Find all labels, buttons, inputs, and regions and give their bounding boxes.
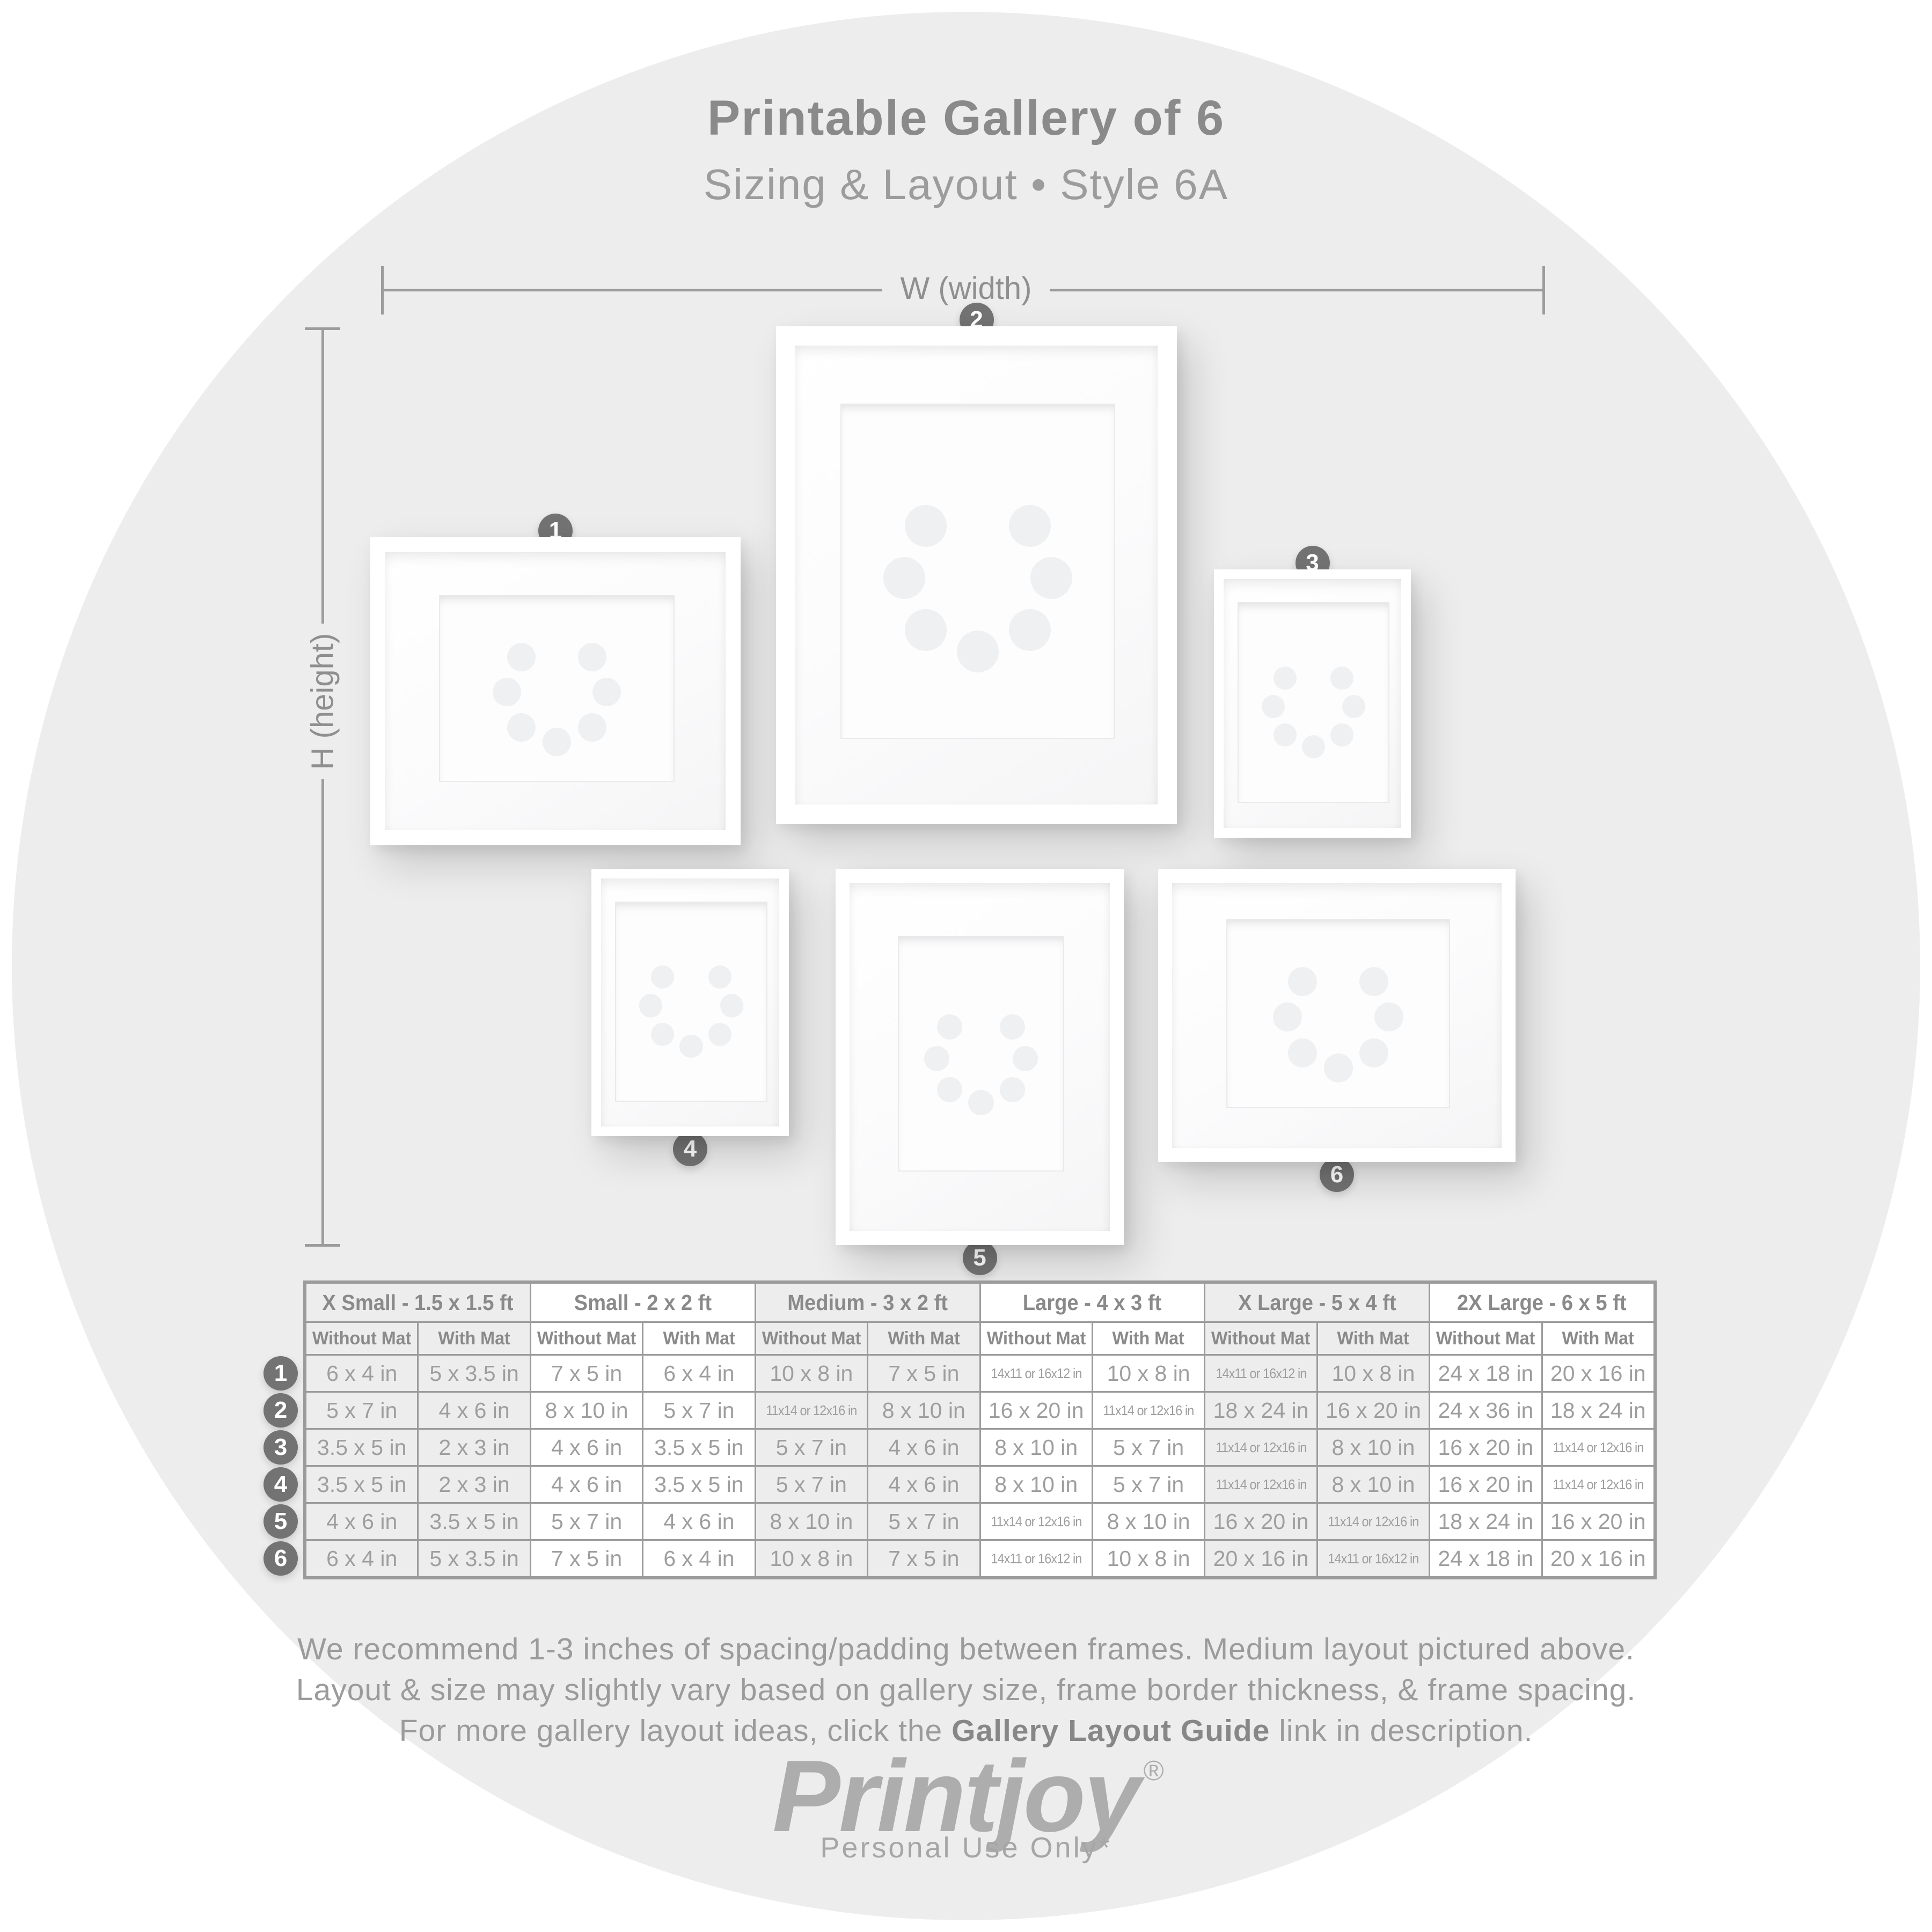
frame-1 (370, 537, 741, 845)
table-cell: 4 x 6 in (531, 1467, 642, 1502)
placeholder-dot (1274, 667, 1297, 690)
table-cell: 4 x 6 in (419, 1393, 529, 1428)
placeholder-dot (543, 728, 571, 756)
frame-mat (795, 346, 1158, 804)
table-cell: 24 x 36 in (1430, 1393, 1541, 1428)
table-cell-value: 11x14 or 12x16 in (1103, 1402, 1194, 1419)
table-cell-value: 8 x 10 in (994, 1472, 1078, 1497)
frame-number-badge-4: 4 (673, 1132, 707, 1166)
table-cell: 4 x 6 in (868, 1467, 979, 1502)
table-cell: 20 x 16 in (1543, 1541, 1653, 1576)
table-subheader: With Mat (643, 1323, 754, 1354)
frame-2 (776, 326, 1177, 824)
table-cell-value: 14x11 or 16x12 in (1216, 1365, 1306, 1382)
table-cell-value: 8 x 10 in (994, 1435, 1078, 1460)
table-cell: 4 x 6 in (531, 1430, 642, 1465)
table-cell: 11x14 or 12x16 in (1543, 1467, 1653, 1502)
height-line-top-segment (321, 328, 324, 624)
placeholder-dot (720, 994, 743, 1017)
table-cell-value: 8 x 10 in (1331, 1472, 1415, 1497)
table-cell: 8 x 10 in (756, 1504, 867, 1539)
table-subheader-label: With Mat (438, 1328, 510, 1349)
table-cell: 7 x 5 in (868, 1541, 979, 1576)
table-subheader-label: Without Mat (762, 1328, 861, 1349)
table-cell-value: 4 x 6 in (551, 1472, 622, 1497)
table-cell: 10 x 8 in (1093, 1541, 1204, 1576)
table-cell: 11x14 or 12x16 in (1205, 1467, 1316, 1502)
table-cell: 6 x 4 in (306, 1356, 417, 1391)
table-subheader: Without Mat (306, 1323, 417, 1354)
table-cell-value: 24 x 18 in (1438, 1361, 1533, 1386)
table-group-header-label: X Small - 1.5 x 1.5 ft (323, 1290, 514, 1315)
table-cell-value: 4 x 6 in (663, 1509, 734, 1534)
table-subheader: With Mat (1543, 1323, 1653, 1354)
table-cell: 20 x 16 in (1543, 1356, 1653, 1391)
table-cell: 10 x 8 in (1318, 1356, 1429, 1391)
table-cell: 5 x 7 in (531, 1504, 642, 1539)
frame-6 (1158, 869, 1516, 1162)
table-subheader-label: With Mat (1113, 1328, 1184, 1349)
personal-use-tagline: Personal Use Only* (0, 1831, 1932, 1864)
frame-mat (385, 552, 726, 830)
table-cell-value: 18 x 24 in (1550, 1398, 1646, 1423)
table-cell: 4 x 6 in (306, 1504, 417, 1539)
placeholder-dot (651, 965, 674, 989)
table-cell-value: 5 x 7 in (663, 1398, 734, 1423)
placeholder-dot (968, 1090, 993, 1115)
table-cell-value: 11x14 or 12x16 in (1328, 1513, 1418, 1530)
mat-opening (439, 595, 675, 782)
table-subheader-label: With Mat (888, 1328, 960, 1349)
table-cell-value: 18 x 24 in (1213, 1398, 1309, 1423)
table-cell: 8 x 10 in (531, 1393, 642, 1428)
table-cell-value: 10 x 8 in (770, 1546, 853, 1571)
table-cell-value: 5 x 3.5 in (429, 1361, 518, 1386)
table-cell: 8 x 10 in (1318, 1430, 1429, 1465)
table-cell-value: 3.5 x 5 in (429, 1509, 518, 1534)
table-cell: 5 x 7 in (1093, 1430, 1204, 1465)
width-line-right-segment (1050, 289, 1545, 291)
table-subheader: Without Mat (981, 1323, 1092, 1354)
table-subheader: With Mat (1318, 1323, 1429, 1354)
placeholder-dot (1288, 1038, 1317, 1067)
note-line-1: We recommend 1-3 inches of spacing/paddi… (0, 1631, 1932, 1667)
table-cell-value: 5 x 7 in (326, 1398, 397, 1423)
table-cell: 7 x 5 in (531, 1541, 642, 1576)
row-number-badge-1: 1 (264, 1356, 298, 1391)
table-subheader-label: With Mat (1562, 1328, 1634, 1349)
row-number-badge-5: 5 (264, 1504, 298, 1539)
table-group-header-label: Small - 2 x 2 ft (574, 1290, 712, 1315)
frame-mat (1172, 883, 1502, 1148)
table-cell: 6 x 4 in (643, 1356, 754, 1391)
table-cell: 14x11 or 16x12 in (1205, 1356, 1316, 1391)
placeholder-dot (708, 965, 731, 989)
page-title: Printable Gallery of 6 (0, 90, 1932, 147)
table-cell: 11x14 or 12x16 in (1205, 1430, 1316, 1465)
table-cell: 11x14 or 12x16 in (981, 1504, 1092, 1539)
frame-mat (1224, 579, 1401, 828)
table-subheader: Without Mat (531, 1323, 642, 1354)
height-label: H (height) (305, 633, 341, 770)
placeholder-dot (1013, 1046, 1038, 1071)
width-line-left-segment (382, 289, 882, 291)
table-cell-value: 3.5 x 5 in (654, 1472, 743, 1497)
table-cell: 16 x 20 in (981, 1393, 1092, 1428)
table-group-header: X Small - 1.5 x 1.5 ft (306, 1284, 530, 1321)
table-cell: 6 x 4 in (306, 1541, 417, 1576)
table-cell: 8 x 10 in (1318, 1467, 1429, 1502)
table-cell-value: 6 x 4 in (663, 1546, 734, 1571)
table-group-header: Medium - 3 x 2 ft (756, 1284, 979, 1321)
table-cell-value: 18 x 24 in (1438, 1509, 1533, 1534)
placeholder-dot (639, 994, 662, 1017)
frame-5 (836, 869, 1124, 1245)
row-number-badge-3: 3 (264, 1430, 298, 1465)
placeholder-dot (1330, 667, 1353, 690)
table-cell: 10 x 8 in (1093, 1356, 1204, 1391)
table-cell: 8 x 10 in (868, 1393, 979, 1428)
table-cell-value: 7 x 5 in (551, 1361, 622, 1386)
table-cell-value: 6 x 4 in (326, 1361, 397, 1386)
table-cell-value: 5 x 7 in (776, 1472, 847, 1497)
table-subheader: Without Mat (1430, 1323, 1541, 1354)
mat-opening (898, 936, 1064, 1172)
table-cell: 14x11 or 16x12 in (1318, 1541, 1429, 1576)
placeholder-dot (493, 678, 521, 706)
frame-number-badge-6: 6 (1320, 1158, 1354, 1192)
table-subheader: Without Mat (756, 1323, 867, 1354)
placeholder-dot (883, 557, 926, 599)
table-cell-value: 4 x 6 in (326, 1509, 397, 1534)
table-cell: 24 x 18 in (1430, 1356, 1541, 1391)
placeholder-dot (957, 631, 999, 673)
table-cell-value: 20 x 16 in (1213, 1546, 1309, 1571)
table-subheader-label: Without Mat (1211, 1328, 1310, 1349)
mat-opening (840, 404, 1115, 739)
table-cell: 5 x 3.5 in (419, 1541, 529, 1576)
row-number-badge-2: 2 (264, 1393, 298, 1428)
placeholder-dot (507, 713, 536, 742)
table-cell: 10 x 8 in (756, 1356, 867, 1391)
placeholder-dot (1324, 1053, 1353, 1082)
table-cell-value: 16 x 20 in (1438, 1472, 1533, 1497)
height-line-top-tick (305, 327, 340, 330)
placeholder-dot (937, 1077, 962, 1102)
table-group-header: Large - 4 x 3 ft (981, 1284, 1204, 1321)
table-subheader-label: Without Mat (537, 1328, 636, 1349)
placeholder-dot (924, 1046, 949, 1071)
placeholder-dot (592, 678, 621, 706)
table-subheader-label: Without Mat (312, 1328, 411, 1349)
table-cell-value: 7 x 5 in (888, 1361, 959, 1386)
table-cell: 4 x 6 in (643, 1504, 754, 1539)
table-cell-value: 4 x 6 in (439, 1398, 510, 1423)
table-cell-value: 8 x 10 in (1107, 1509, 1190, 1534)
table-cell-value: 24 x 18 in (1438, 1546, 1533, 1571)
table-cell-value: 2 x 3 in (439, 1435, 510, 1460)
placeholder-dot (1030, 557, 1073, 599)
table-cell: 14x11 or 16x12 in (981, 1541, 1092, 1576)
frame-number-badge-5: 5 (963, 1241, 997, 1275)
table-cell-value: 16 x 20 in (1213, 1509, 1309, 1534)
table-cell: 8 x 10 in (981, 1467, 1092, 1502)
placeholder-dot (1302, 735, 1325, 758)
mat-opening (1238, 602, 1389, 803)
table-cell: 16 x 20 in (1430, 1467, 1541, 1502)
height-line-bottom-segment (321, 779, 324, 1245)
table-subheader: With Mat (868, 1323, 979, 1354)
table-cell: 11x14 or 12x16 in (1543, 1430, 1653, 1465)
table-cell-value: 11x14 or 12x16 in (991, 1513, 1081, 1530)
placeholder-dot (1330, 723, 1353, 747)
frame-mat (601, 879, 779, 1126)
table-cell-value: 7 x 5 in (551, 1546, 622, 1571)
table-cell: 3.5 x 5 in (306, 1467, 417, 1502)
table-cell-value: 3.5 x 5 in (317, 1472, 406, 1497)
table-cell-value: 16 x 20 in (1438, 1435, 1533, 1460)
frame-3 (1214, 569, 1411, 838)
table-cell: 24 x 18 in (1430, 1541, 1541, 1576)
table-cell-value: 8 x 10 in (545, 1398, 628, 1423)
placeholder-dot (679, 1035, 702, 1058)
table-cell: 3.5 x 5 in (419, 1504, 529, 1539)
placeholder-dot (1000, 1014, 1025, 1040)
size-table: X Small - 1.5 x 1.5 ftSmall - 2 x 2 ftMe… (303, 1280, 1657, 1579)
placeholder-dot (1359, 967, 1388, 996)
table-group-header: X Large - 5 x 4 ft (1205, 1284, 1429, 1321)
frame-4 (591, 869, 789, 1136)
table-cell: 2 x 3 in (419, 1467, 529, 1502)
table-cell: 14x11 or 16x12 in (981, 1356, 1092, 1391)
note-line-2: Layout & size may slightly vary based on… (0, 1672, 1932, 1708)
table-cell: 2 x 3 in (419, 1430, 529, 1465)
table-cell-value: 20 x 16 in (1550, 1361, 1646, 1386)
table-group-header-label: X Large - 5 x 4 ft (1238, 1290, 1396, 1315)
table-cell: 18 x 24 in (1430, 1504, 1541, 1539)
table-cell-value: 16 x 20 in (1550, 1509, 1646, 1534)
placeholder-dot (1273, 1002, 1302, 1031)
table-group-header: 2X Large - 6 x 5 ft (1430, 1284, 1653, 1321)
table-cell: 8 x 10 in (981, 1430, 1092, 1465)
table-cell: 5 x 7 in (756, 1430, 867, 1465)
placeholder-dot (1342, 695, 1365, 718)
table-subheader-label: With Mat (663, 1328, 735, 1349)
table-cell: 18 x 24 in (1543, 1393, 1653, 1428)
placeholder-dot (1274, 723, 1297, 747)
table-cell: 5 x 7 in (868, 1504, 979, 1539)
table-cell: 8 x 10 in (1093, 1504, 1204, 1539)
table-cell: 20 x 16 in (1205, 1541, 1316, 1576)
table-cell: 16 x 20 in (1205, 1504, 1316, 1539)
placeholder-dot (1000, 1077, 1025, 1102)
placeholder-dot (1359, 1038, 1388, 1067)
table-cell-value: 10 x 8 in (1107, 1546, 1190, 1571)
table-cell-value: 6 x 4 in (326, 1546, 397, 1571)
table-group-header: Small - 2 x 2 ft (531, 1284, 755, 1321)
placeholder-dot (1374, 1002, 1403, 1031)
width-label: W (width) (901, 270, 1032, 306)
table-cell-value: 5 x 7 in (1113, 1435, 1184, 1460)
table-subheader-label: Without Mat (986, 1328, 1085, 1349)
table-subheader: With Mat (1093, 1323, 1204, 1354)
table-cell-value: 4 x 6 in (551, 1435, 622, 1460)
page-subtitle: Sizing & Layout • Style 6A (0, 160, 1932, 209)
table-cell: 5 x 7 in (756, 1467, 867, 1502)
table-cell-value: 11x14 or 12x16 in (1553, 1476, 1643, 1493)
table-cell-value: 14x11 or 16x12 in (1328, 1550, 1418, 1567)
table-cell: 10 x 8 in (756, 1541, 867, 1576)
placeholder-dot (651, 1023, 674, 1046)
table-cell: 5 x 7 in (1093, 1467, 1204, 1502)
height-line-bottom-tick (305, 1244, 340, 1247)
table-cell-value: 5 x 7 in (1113, 1472, 1184, 1497)
placeholder-dot (578, 713, 606, 742)
placeholder-dot (1262, 695, 1285, 718)
width-line-left-tick (381, 266, 384, 314)
table-subheader-label: Without Mat (1436, 1328, 1535, 1349)
table-cell-value: 6 x 4 in (663, 1361, 734, 1386)
mat-opening (1226, 919, 1450, 1108)
placeholder-dot (937, 1014, 962, 1040)
placeholder-dot (708, 1023, 731, 1046)
table-cell: 11x14 or 12x16 in (1318, 1504, 1429, 1539)
table-cell-value: 5 x 7 in (551, 1509, 622, 1534)
mat-opening (615, 902, 767, 1102)
table-cell: 5 x 7 in (643, 1393, 754, 1428)
table-cell-value: 4 x 6 in (888, 1472, 959, 1497)
table-cell: 3.5 x 5 in (306, 1430, 417, 1465)
placeholder-dot (507, 643, 536, 671)
table-cell-value: 10 x 8 in (1107, 1361, 1190, 1386)
table-cell-value: 5 x 7 in (776, 1435, 847, 1460)
table-cell: 5 x 3.5 in (419, 1356, 529, 1391)
table-cell: 16 x 20 in (1430, 1430, 1541, 1465)
table-subheader-label: With Mat (1337, 1328, 1409, 1349)
table-cell: 7 x 5 in (868, 1356, 979, 1391)
placeholder-dot (905, 505, 947, 547)
table-cell-value: 4 x 6 in (888, 1435, 959, 1460)
table-cell-value: 11x14 or 12x16 in (1216, 1476, 1306, 1493)
table-cell: 7 x 5 in (531, 1356, 642, 1391)
table-cell: 11x14 or 12x16 in (756, 1393, 867, 1428)
table-cell: 18 x 24 in (1205, 1393, 1316, 1428)
table-subheader: With Mat (419, 1323, 529, 1354)
table-cell-value: 20 x 16 in (1550, 1546, 1646, 1571)
table-cell-value: 16 x 20 in (1326, 1398, 1421, 1423)
row-number-badge-6: 6 (264, 1541, 298, 1576)
table-cell: 16 x 20 in (1318, 1393, 1429, 1428)
table-group-header-label: Large - 4 x 3 ft (1023, 1290, 1162, 1315)
table-cell: 5 x 7 in (306, 1393, 417, 1428)
table-cell-value: 14x11 or 16x12 in (991, 1365, 1081, 1382)
table-cell-value: 10 x 8 in (1331, 1361, 1415, 1386)
table-cell-value: 24 x 36 in (1438, 1398, 1533, 1423)
table-subheader: Without Mat (1205, 1323, 1316, 1354)
registered-trademark-icon: ® (1143, 1755, 1163, 1787)
table-group-header-label: Medium - 3 x 2 ft (787, 1290, 948, 1315)
table-cell: 3.5 x 5 in (643, 1430, 754, 1465)
table-cell-value: 5 x 3.5 in (429, 1546, 518, 1571)
table-cell-value: 11x14 or 12x16 in (766, 1402, 857, 1419)
table-cell-value: 10 x 8 in (770, 1361, 853, 1386)
placeholder-dot (905, 609, 947, 652)
table-cell: 11x14 or 12x16 in (1093, 1393, 1204, 1428)
table-group-header-label: 2X Large - 6 x 5 ft (1457, 1290, 1627, 1315)
table-cell-value: 3.5 x 5 in (317, 1435, 406, 1460)
placeholder-dot (1009, 505, 1051, 547)
table-cell-value: 8 x 10 in (882, 1398, 965, 1423)
table-cell-value: 8 x 10 in (770, 1509, 853, 1534)
placeholder-dot (1009, 609, 1051, 652)
table-cell-value: 8 x 10 in (1331, 1435, 1415, 1460)
table-cell-value: 11x14 or 12x16 in (1553, 1439, 1643, 1456)
table-cell-value: 14x11 or 16x12 in (991, 1550, 1081, 1567)
table-cell: 16 x 20 in (1543, 1504, 1653, 1539)
table-cell-value: 7 x 5 in (888, 1546, 959, 1571)
table-cell: 4 x 6 in (868, 1430, 979, 1465)
table-cell-value: 3.5 x 5 in (654, 1435, 743, 1460)
table-cell-value: 11x14 or 12x16 in (1216, 1439, 1306, 1456)
width-line-right-tick (1542, 266, 1545, 314)
row-number-badge-4: 4 (264, 1467, 298, 1502)
table-cell-value: 5 x 7 in (888, 1509, 959, 1534)
table-cell: 3.5 x 5 in (643, 1467, 754, 1502)
placeholder-dot (1288, 967, 1317, 996)
table-cell: 6 x 4 in (643, 1541, 754, 1576)
frame-mat (850, 883, 1110, 1231)
placeholder-dot (578, 643, 606, 671)
table-cell-value: 2 x 3 in (439, 1472, 510, 1497)
table-cell-value: 16 x 20 in (989, 1398, 1084, 1423)
